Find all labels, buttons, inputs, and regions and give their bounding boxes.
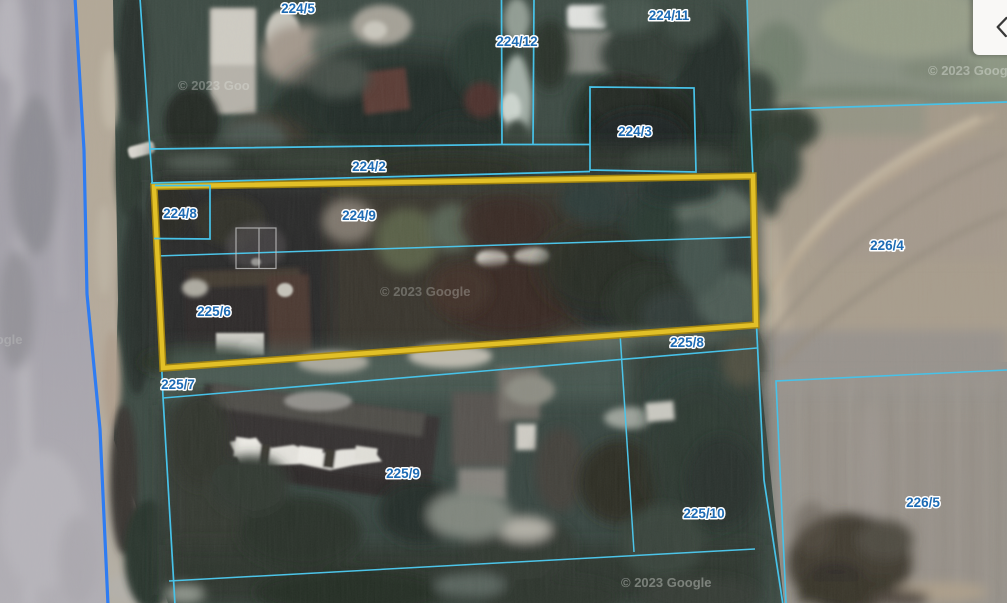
svg-text:© 2023 Goo: © 2023 Goo — [178, 78, 250, 93]
svg-text:224/5: 224/5 — [281, 1, 315, 16]
svg-text:224/8: 224/8 — [163, 206, 197, 221]
svg-text:224/12: 224/12 — [496, 34, 537, 49]
svg-text:225/8: 225/8 — [670, 335, 704, 350]
svg-text:226/5: 226/5 — [906, 495, 940, 510]
svg-text:225/6: 225/6 — [197, 304, 231, 319]
svg-text:224/11: 224/11 — [649, 8, 690, 23]
svg-text:224/9: 224/9 — [342, 208, 376, 223]
svg-text:© 2023 Google: © 2023 Google — [621, 575, 712, 590]
svg-text:225/9: 225/9 — [386, 466, 420, 481]
svg-text:224/3: 224/3 — [618, 124, 652, 139]
svg-text:© 2023 Google: © 2023 Google — [0, 332, 23, 347]
svg-text:© 2023 Google: © 2023 Google — [380, 284, 471, 299]
svg-text:225/7: 225/7 — [161, 377, 195, 392]
svg-text:© 2023 Goog: © 2023 Goog — [928, 63, 1007, 78]
svg-text:226/4: 226/4 — [870, 238, 904, 253]
svg-text:225/10: 225/10 — [683, 506, 724, 521]
svg-text:224/2: 224/2 — [352, 159, 386, 174]
